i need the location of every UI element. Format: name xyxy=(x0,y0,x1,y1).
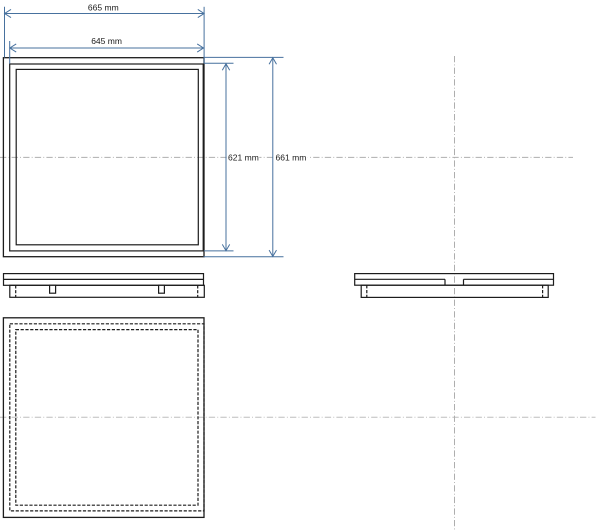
svg-text:645 mm: 645 mm xyxy=(91,36,122,46)
svg-text:665 mm: 665 mm xyxy=(88,3,119,13)
svg-text:661 mm: 661 mm xyxy=(276,153,307,163)
svg-text:621 mm: 621 mm xyxy=(228,153,259,163)
